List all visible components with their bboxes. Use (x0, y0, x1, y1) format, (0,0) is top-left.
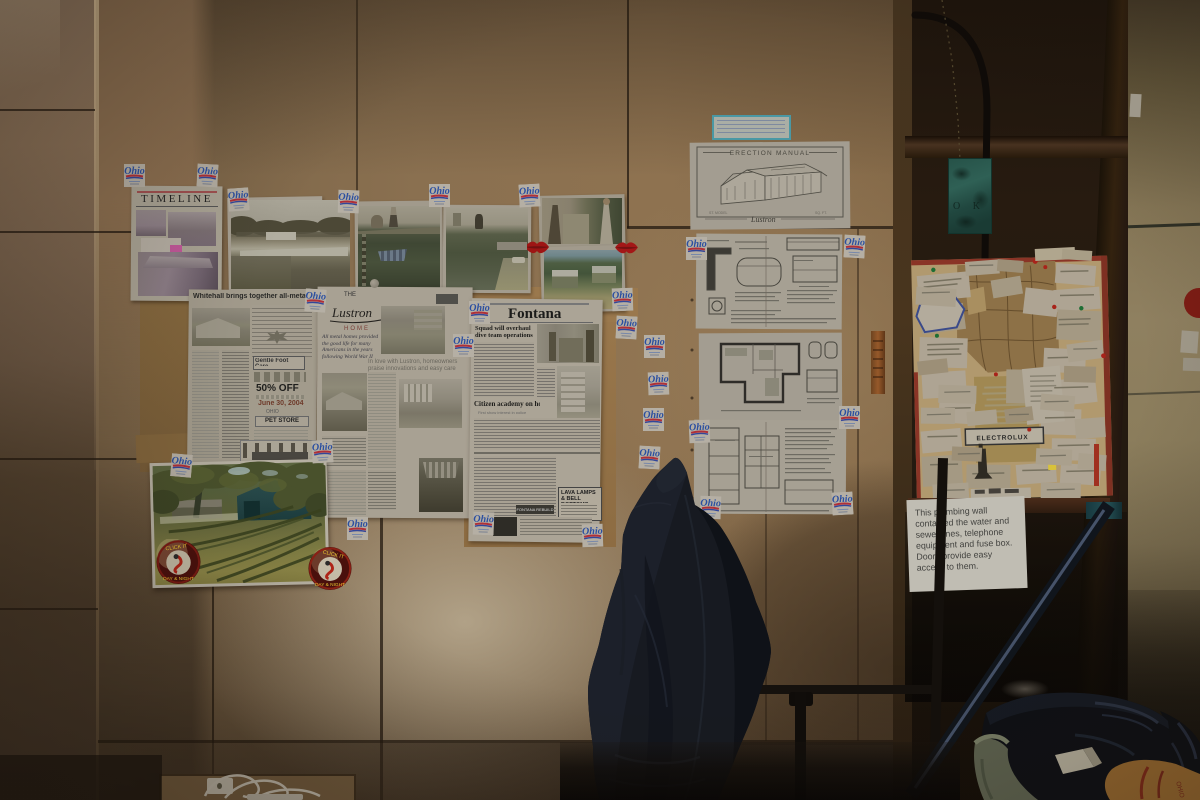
svg-text:Lustron: Lustron (331, 305, 372, 320)
svg-text:Lustron: Lustron (750, 215, 776, 224)
svg-text:DAY & NIGHT: DAY & NIGHT (315, 582, 345, 588)
svg-text:ERECTION MANUAL: ERECTION MANUAL (730, 150, 810, 157)
svg-text:SQ. FT.: SQ. FT. (815, 211, 827, 215)
svg-text:DAY & NIGHT: DAY & NIGHT (163, 576, 194, 582)
svg-text:ELECTROLUX: ELECTROLUX (976, 434, 1028, 442)
svg-text:ST. MODEL: ST. MODEL (709, 211, 728, 215)
